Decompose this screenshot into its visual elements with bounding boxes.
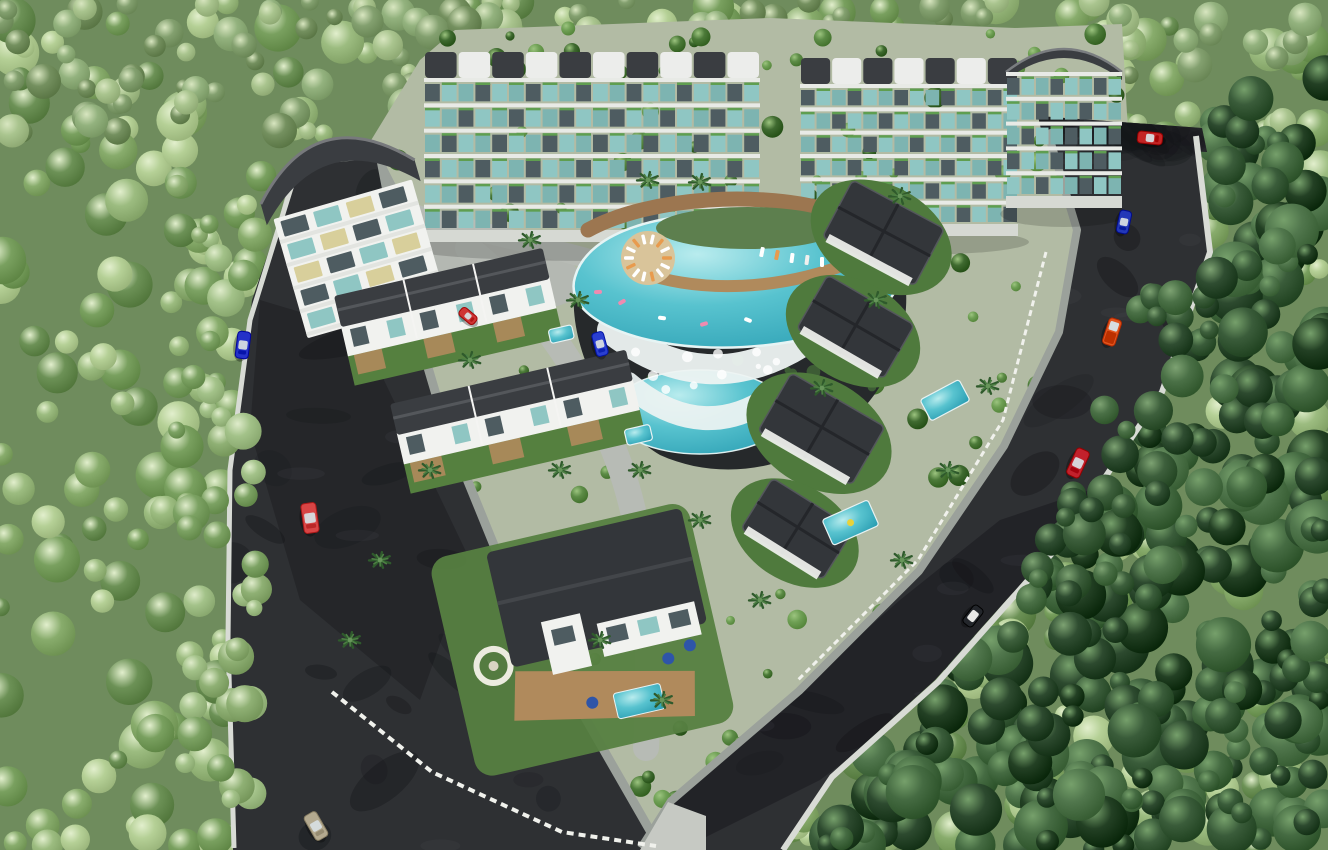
balcony-planter bbox=[509, 133, 524, 136]
palm-crown bbox=[900, 558, 905, 563]
window bbox=[543, 84, 558, 101]
window bbox=[425, 84, 440, 101]
window bbox=[1080, 103, 1093, 120]
window bbox=[848, 90, 862, 105]
window bbox=[926, 90, 940, 105]
roof-canopy bbox=[863, 58, 892, 84]
window bbox=[972, 137, 986, 152]
window bbox=[1109, 128, 1122, 145]
window bbox=[957, 183, 971, 198]
window bbox=[526, 84, 541, 101]
balcony-planter bbox=[694, 108, 709, 111]
floor-slab bbox=[424, 129, 760, 133]
window bbox=[711, 135, 726, 152]
window bbox=[610, 135, 625, 152]
window bbox=[509, 135, 524, 152]
windshield bbox=[238, 340, 248, 350]
window bbox=[1065, 152, 1078, 169]
window bbox=[1007, 128, 1020, 145]
tree bbox=[326, 9, 342, 25]
balcony-planter bbox=[1065, 101, 1078, 104]
roof-canopy bbox=[627, 52, 659, 78]
window bbox=[475, 84, 490, 101]
window bbox=[660, 84, 675, 101]
tree bbox=[231, 32, 256, 57]
balcony-planter bbox=[1080, 176, 1093, 179]
floor-slab bbox=[800, 131, 1018, 135]
palm-crown bbox=[874, 298, 879, 303]
window bbox=[910, 90, 924, 105]
balcony-planter bbox=[425, 209, 440, 212]
window bbox=[1051, 177, 1064, 194]
tree bbox=[1028, 677, 1059, 708]
tree bbox=[228, 260, 259, 291]
tree bbox=[55, 330, 78, 353]
palm-crown bbox=[576, 298, 581, 303]
balcony-planter bbox=[941, 135, 955, 138]
window bbox=[972, 183, 986, 198]
tree bbox=[259, 2, 281, 24]
balcony-planter bbox=[1007, 101, 1020, 104]
tree bbox=[1011, 281, 1021, 291]
balcony-planter bbox=[694, 159, 709, 162]
window bbox=[1051, 128, 1064, 145]
floor-slab bbox=[800, 84, 1018, 88]
window bbox=[610, 185, 625, 202]
tree bbox=[105, 179, 148, 222]
balcony-planter bbox=[459, 209, 474, 212]
tree bbox=[669, 36, 686, 53]
window bbox=[1022, 152, 1035, 169]
tree bbox=[1175, 515, 1198, 538]
roof-canopy bbox=[459, 52, 491, 78]
palm-crown bbox=[946, 468, 951, 473]
balcony-planter bbox=[863, 159, 877, 162]
window bbox=[1051, 78, 1064, 95]
balcony-planter bbox=[1065, 151, 1078, 154]
balcony-planter bbox=[1051, 77, 1064, 80]
window bbox=[660, 135, 675, 152]
foam-bubble bbox=[648, 371, 658, 381]
window bbox=[593, 135, 608, 152]
balcony-planter bbox=[879, 89, 893, 92]
foam-bubble bbox=[717, 370, 727, 380]
tree bbox=[1112, 494, 1136, 518]
palm-crown bbox=[986, 384, 991, 389]
roof-canopy bbox=[425, 52, 457, 78]
tree bbox=[57, 45, 75, 63]
balcony-planter bbox=[727, 108, 742, 111]
window bbox=[894, 160, 908, 175]
tree bbox=[692, 27, 711, 46]
window bbox=[1080, 128, 1093, 145]
tree bbox=[178, 717, 213, 752]
window bbox=[711, 160, 726, 177]
balcony-planter bbox=[988, 205, 1002, 208]
balcony-planter bbox=[593, 209, 608, 212]
window bbox=[492, 109, 507, 126]
balcony-planter bbox=[957, 112, 971, 115]
tree bbox=[439, 30, 456, 47]
window bbox=[744, 109, 759, 126]
tree bbox=[106, 659, 152, 705]
window bbox=[526, 160, 541, 177]
balcony-planter bbox=[526, 159, 541, 162]
tree bbox=[1196, 257, 1238, 299]
balcony-planter bbox=[442, 184, 457, 187]
tree bbox=[1288, 3, 1322, 37]
tree bbox=[84, 559, 107, 582]
tree bbox=[90, 343, 117, 370]
palm-crown bbox=[758, 598, 763, 603]
window bbox=[593, 160, 608, 177]
roof-canopy bbox=[957, 58, 986, 84]
windshield bbox=[1145, 134, 1154, 143]
window bbox=[727, 109, 742, 126]
tree bbox=[166, 175, 188, 197]
tree bbox=[226, 638, 250, 662]
window bbox=[988, 90, 1002, 105]
tree bbox=[763, 669, 773, 679]
window bbox=[425, 135, 440, 152]
tree bbox=[205, 244, 233, 272]
window bbox=[425, 109, 440, 126]
balcony-planter bbox=[1109, 126, 1122, 129]
window bbox=[677, 135, 692, 152]
window bbox=[1007, 103, 1020, 120]
tree bbox=[1159, 796, 1206, 843]
window bbox=[1022, 177, 1035, 194]
window bbox=[894, 137, 908, 152]
balcony-planter bbox=[817, 135, 831, 138]
tree bbox=[200, 215, 219, 234]
tree bbox=[80, 293, 115, 328]
window bbox=[543, 211, 558, 228]
tree bbox=[1109, 4, 1132, 27]
tree bbox=[234, 483, 258, 507]
window bbox=[1109, 177, 1122, 194]
tree bbox=[226, 685, 263, 722]
window bbox=[801, 160, 815, 175]
window bbox=[643, 109, 658, 126]
palm-crown bbox=[646, 178, 651, 183]
balcony-planter bbox=[492, 108, 507, 111]
window bbox=[576, 84, 591, 101]
balcony-planter bbox=[543, 133, 558, 136]
window bbox=[593, 84, 608, 101]
balcony-planter bbox=[1109, 176, 1122, 179]
window bbox=[459, 185, 474, 202]
tree bbox=[1175, 101, 1201, 127]
balcony-planter bbox=[610, 133, 625, 136]
balcony-planter bbox=[526, 108, 541, 111]
balcony-planter bbox=[711, 184, 726, 187]
asphalt-highlight bbox=[277, 467, 325, 480]
window bbox=[593, 185, 608, 202]
tree bbox=[1261, 403, 1295, 437]
floor-slab bbox=[424, 103, 760, 107]
tree bbox=[78, 79, 97, 98]
tree bbox=[109, 751, 127, 769]
window bbox=[910, 160, 924, 175]
tree bbox=[1109, 533, 1131, 555]
balcony-planter bbox=[910, 182, 924, 185]
window bbox=[1094, 128, 1107, 145]
tree bbox=[111, 392, 135, 416]
window bbox=[492, 84, 507, 101]
window bbox=[475, 109, 490, 126]
asphalt-highlight bbox=[1179, 234, 1201, 246]
window bbox=[559, 160, 574, 177]
palm-crown bbox=[468, 358, 473, 363]
tree bbox=[1177, 47, 1212, 82]
window bbox=[1109, 152, 1122, 169]
window bbox=[744, 160, 759, 177]
tree bbox=[1243, 30, 1268, 55]
tree bbox=[222, 790, 240, 808]
balcony-planter bbox=[593, 159, 608, 162]
balcony-planter bbox=[559, 108, 574, 111]
palm-crown bbox=[598, 638, 603, 643]
window bbox=[832, 113, 846, 128]
balcony-planter bbox=[988, 159, 1002, 162]
window bbox=[972, 113, 986, 128]
tree bbox=[1016, 584, 1047, 615]
window bbox=[863, 90, 877, 105]
window bbox=[677, 160, 692, 177]
tree bbox=[561, 22, 575, 36]
window bbox=[910, 137, 924, 152]
balcony-planter bbox=[801, 159, 815, 162]
floor-slab bbox=[424, 154, 760, 158]
foam-bubble bbox=[631, 348, 640, 357]
window bbox=[509, 211, 524, 228]
tree bbox=[302, 69, 334, 101]
tree bbox=[145, 592, 185, 632]
tree bbox=[1161, 422, 1193, 454]
window bbox=[459, 211, 474, 228]
tree bbox=[97, 256, 132, 291]
window bbox=[442, 135, 457, 152]
window bbox=[660, 160, 675, 177]
tree bbox=[1017, 704, 1054, 741]
tree bbox=[1053, 769, 1105, 821]
foam-bubble bbox=[752, 348, 761, 357]
balcony-planter bbox=[972, 182, 986, 185]
window bbox=[727, 160, 742, 177]
window bbox=[957, 207, 971, 222]
foam-bubble bbox=[773, 358, 781, 366]
tree bbox=[273, 57, 304, 88]
window bbox=[1080, 152, 1093, 169]
window bbox=[1080, 78, 1093, 95]
floor-slab bbox=[424, 78, 760, 82]
balcony-planter bbox=[910, 89, 924, 92]
tree bbox=[762, 116, 784, 138]
tree bbox=[127, 529, 149, 551]
balcony-planter bbox=[660, 159, 675, 162]
balcony-planter bbox=[941, 182, 955, 185]
roof-canopy bbox=[660, 52, 692, 78]
tree bbox=[164, 214, 198, 248]
tree bbox=[775, 589, 785, 599]
window bbox=[848, 113, 862, 128]
window bbox=[576, 109, 591, 126]
tree bbox=[1084, 23, 1106, 45]
window bbox=[926, 137, 940, 152]
balcony-planter bbox=[817, 182, 831, 185]
windshield bbox=[304, 512, 316, 523]
tree bbox=[1108, 704, 1162, 758]
window bbox=[988, 160, 1002, 175]
window bbox=[1022, 128, 1035, 145]
balcony-planter bbox=[593, 108, 608, 111]
window bbox=[1080, 177, 1093, 194]
balcony-planter bbox=[1051, 126, 1064, 129]
scene-svg bbox=[0, 0, 1328, 850]
window bbox=[492, 135, 507, 152]
balcony-planter bbox=[543, 184, 558, 187]
tree bbox=[179, 692, 207, 720]
window bbox=[694, 84, 709, 101]
tree bbox=[1265, 46, 1288, 69]
foam-bubble bbox=[661, 385, 670, 394]
tree bbox=[95, 78, 120, 103]
roof-canopy bbox=[593, 52, 625, 78]
tree bbox=[950, 784, 1002, 836]
balcony-planter bbox=[677, 133, 692, 136]
window bbox=[1036, 128, 1049, 145]
roof-canopy bbox=[926, 58, 955, 84]
balcony-planter bbox=[1007, 151, 1020, 154]
window bbox=[832, 160, 846, 175]
window bbox=[1051, 152, 1064, 169]
window bbox=[543, 160, 558, 177]
window bbox=[459, 135, 474, 152]
window bbox=[526, 109, 541, 126]
balcony-planter bbox=[643, 83, 658, 86]
tree bbox=[4, 70, 25, 91]
balcony-planter bbox=[957, 159, 971, 162]
tree bbox=[1174, 28, 1199, 53]
window bbox=[492, 211, 507, 228]
tree bbox=[104, 497, 128, 521]
balcony-planter bbox=[559, 209, 574, 212]
window bbox=[988, 183, 1002, 198]
balcony-planter bbox=[727, 159, 742, 162]
tree bbox=[34, 537, 80, 583]
tree bbox=[251, 73, 274, 96]
tree bbox=[1231, 802, 1252, 823]
tree bbox=[1200, 321, 1219, 340]
palm-crown bbox=[558, 468, 563, 473]
window bbox=[459, 109, 474, 126]
window bbox=[957, 113, 971, 128]
balcony-planter bbox=[957, 205, 971, 208]
balcony-planter bbox=[475, 83, 490, 86]
window bbox=[610, 160, 625, 177]
tree bbox=[1208, 508, 1245, 545]
tree bbox=[1143, 546, 1182, 585]
window bbox=[817, 113, 831, 128]
window bbox=[694, 109, 709, 126]
balcony-planter bbox=[492, 159, 507, 162]
window bbox=[492, 185, 507, 202]
balcony-planter bbox=[1094, 151, 1107, 154]
tree bbox=[1101, 436, 1139, 474]
window bbox=[832, 137, 846, 152]
window bbox=[475, 185, 490, 202]
balcony-planter bbox=[848, 89, 862, 92]
window bbox=[442, 109, 457, 126]
roof-canopy bbox=[801, 58, 830, 84]
balcony-planter bbox=[459, 159, 474, 162]
tree bbox=[1261, 610, 1282, 631]
window bbox=[643, 84, 658, 101]
balcony-planter bbox=[910, 135, 924, 138]
balcony-planter bbox=[744, 133, 759, 136]
tree bbox=[505, 31, 514, 40]
tree bbox=[118, 67, 143, 92]
window bbox=[475, 160, 490, 177]
tree bbox=[1298, 760, 1327, 789]
tree bbox=[184, 585, 216, 617]
balcony-planter bbox=[817, 89, 831, 92]
tree bbox=[242, 551, 269, 578]
tree bbox=[1259, 228, 1296, 265]
window bbox=[817, 90, 831, 105]
balcony-planter bbox=[972, 89, 986, 92]
window bbox=[442, 160, 457, 177]
pool-float bbox=[594, 290, 602, 294]
balcony-planter bbox=[576, 133, 591, 136]
window bbox=[1109, 103, 1122, 120]
tree bbox=[75, 104, 108, 137]
tree bbox=[26, 64, 61, 99]
tree bbox=[1226, 466, 1267, 507]
tree bbox=[642, 771, 655, 784]
tree bbox=[916, 732, 939, 755]
tree bbox=[24, 170, 51, 197]
window bbox=[576, 185, 591, 202]
tree bbox=[62, 789, 92, 819]
window bbox=[711, 109, 726, 126]
palm-crown bbox=[638, 468, 643, 473]
tree bbox=[1135, 584, 1162, 611]
window bbox=[848, 137, 862, 152]
window bbox=[926, 183, 940, 198]
window bbox=[509, 109, 524, 126]
tree bbox=[975, 8, 993, 26]
floor-slab bbox=[1006, 122, 1122, 126]
balcony-planter bbox=[442, 133, 457, 136]
window bbox=[526, 211, 541, 228]
window bbox=[817, 160, 831, 175]
window bbox=[559, 211, 574, 228]
window bbox=[1065, 103, 1078, 120]
tree bbox=[136, 714, 174, 752]
tree bbox=[204, 521, 231, 548]
tree bbox=[986, 29, 995, 38]
window bbox=[610, 84, 625, 101]
window bbox=[610, 109, 625, 126]
balcony-planter bbox=[894, 159, 908, 162]
tree bbox=[1093, 562, 1117, 586]
window bbox=[1065, 177, 1078, 194]
sun-lounger bbox=[624, 256, 634, 259]
tree bbox=[1249, 747, 1278, 776]
tree bbox=[32, 505, 65, 538]
